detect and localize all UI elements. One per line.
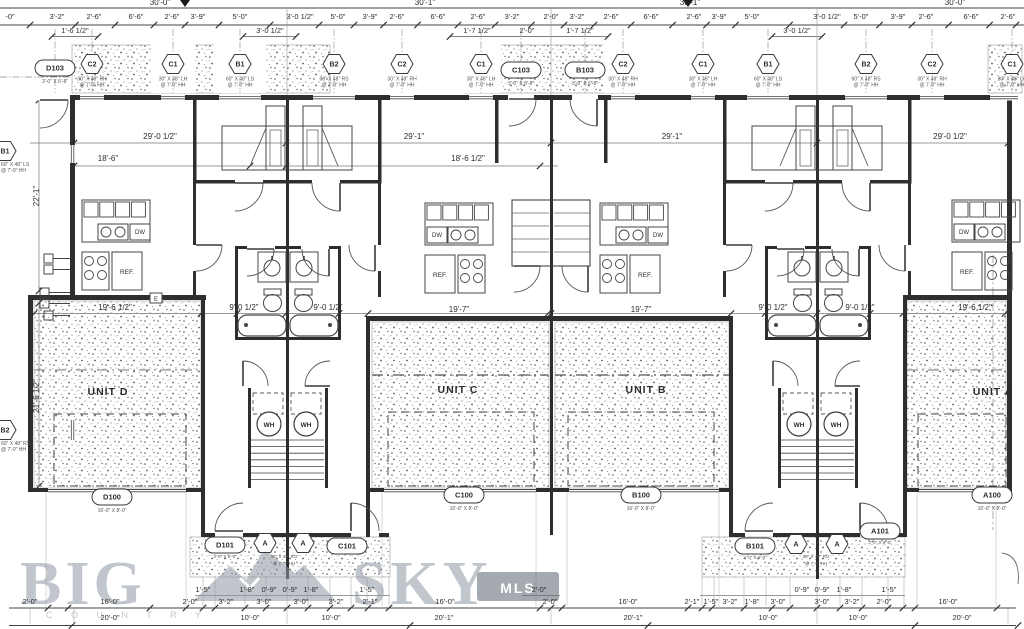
dim-text: 10'-0": [758, 613, 777, 622]
wall: [773, 533, 860, 537]
burner: [474, 274, 483, 283]
window-tag-label: C1: [1008, 62, 1017, 69]
dim-text: 5'-0": [331, 12, 346, 21]
door-swing-arc: [509, 99, 536, 126]
window-spec-text: @ 7'-0" HH: [610, 83, 635, 89]
window-opening: [390, 95, 414, 101]
burner: [988, 271, 997, 280]
dim-text: 3'-9": [891, 12, 906, 21]
cabinet: [602, 205, 616, 220]
door-tag-label: B103: [576, 66, 594, 75]
furniture-inner: [837, 130, 848, 166]
dim-text: 3'-0": [257, 597, 272, 606]
door-swing-arc: [562, 266, 588, 292]
dim-text: 2'-0": [23, 597, 38, 606]
sink-bowl: [992, 227, 1002, 237]
cabinet: [618, 205, 632, 220]
dim-text: 10'-0": [848, 613, 867, 622]
interior-dim-text: 18'-6 1/2": [451, 154, 485, 163]
interior-dim-text: 29'-1": [662, 132, 683, 141]
wall: [903, 295, 1012, 300]
dim-text: 0'-9": [283, 585, 298, 594]
wall: [366, 316, 370, 492]
appliance-dashed: [291, 393, 321, 414]
furniture-tall: [833, 106, 852, 170]
door-swing-arc: [726, 245, 752, 271]
dim-text: 1'-5": [196, 585, 211, 594]
interior-dim-text: 29'-0 1/2": [933, 132, 967, 141]
wall: [870, 180, 912, 184]
window-opening: [219, 95, 261, 101]
burner: [85, 271, 94, 280]
wall: [340, 180, 382, 184]
wall: [805, 246, 831, 249]
door-swing-arc: [247, 249, 274, 276]
door-tag-label: D100: [103, 493, 121, 502]
dishwasher-label: DW: [135, 230, 145, 236]
unit-label: UNIT C: [438, 384, 479, 396]
door-tag-label: C101: [338, 542, 356, 551]
window-opening: [313, 95, 355, 101]
dim-text: 3'-2": [723, 597, 738, 606]
wall: [903, 492, 907, 537]
wall: [765, 337, 871, 340]
dim-text: 3'-0 1/2": [286, 12, 314, 21]
overall-dim-text: 30'-0": [945, 0, 966, 7]
cabinet: [459, 205, 473, 220]
window-spec-text: 3'-0" X 6'-8": [42, 79, 68, 85]
tub-drain: [774, 323, 778, 327]
dim-text: 3'-0 1/2": [783, 26, 811, 35]
wall: [193, 271, 196, 297]
kitchen-sink: [448, 227, 478, 243]
wall: [551, 488, 569, 492]
wall: [729, 533, 745, 537]
tub-drain: [328, 323, 332, 327]
line: [780, 128, 796, 166]
dim-text: 20'-1": [434, 613, 453, 622]
overall-dim-text: 30'-0": [150, 0, 171, 7]
dim-text: 2'-6": [471, 12, 486, 21]
window-tag-label: B2: [330, 62, 339, 69]
refrigerator-label: REF.: [638, 272, 652, 279]
door-swing-arc: [765, 183, 793, 211]
window-spec-text: @ 7'-0" HH: [1, 168, 26, 174]
furniture-inner: [800, 130, 811, 166]
sink-bowl: [115, 227, 125, 237]
window-tag-label: A: [262, 541, 267, 548]
toilet-bowl: [295, 295, 313, 312]
cabinet: [474, 205, 488, 220]
window-tag-label: C2: [619, 62, 628, 69]
wall: [719, 488, 733, 492]
kitchen-sink: [616, 227, 646, 243]
dim-text: 2'-1": [685, 597, 700, 606]
burner: [461, 274, 470, 283]
door-swing-arc: [832, 249, 859, 276]
watermark-big: BIG: [20, 550, 146, 618]
door-swing-arc: [40, 100, 68, 128]
window-tag-label: A: [300, 541, 305, 548]
window-opening: [161, 95, 185, 101]
window-spec-text: 3'-0" X 6'-8": [572, 81, 598, 87]
cabinet: [986, 202, 1000, 217]
wall: [378, 95, 382, 183]
window-spec-text: @ 7'-0" HH: [160, 83, 185, 89]
wall: [723, 95, 727, 183]
window-opening: [990, 95, 1018, 101]
door-tag-label: A100: [983, 491, 1001, 500]
dim-text: 5'-0": [233, 12, 248, 21]
kitchen-sink: [98, 224, 128, 240]
window-spec-text: @ 7'-0" HH: [999, 83, 1024, 89]
window-tag-label: A: [834, 542, 839, 549]
dim-text: 10'-0": [321, 613, 340, 622]
burner: [461, 260, 470, 269]
garage-door-size-text: 16'-0" X 8'-0": [978, 506, 1007, 512]
floorplan-drawing: WHWHWHWHDWREF.DWREF.DWREF.DWREF.E BIG SK…: [0, 0, 1024, 629]
door-swing-arc: [215, 503, 243, 531]
door-swing-arc: [835, 361, 860, 386]
door-swing-arc: [777, 249, 804, 276]
door-swing-arc: [745, 503, 773, 531]
dim-text: 2'-0": [543, 597, 558, 606]
cabinet: [131, 202, 145, 217]
utility-meter: [44, 265, 53, 274]
dim-text: 1'-8": [304, 585, 319, 594]
garage-door-size-text: 16'-0" X 8'-0": [450, 506, 479, 512]
wall: [729, 492, 733, 537]
door-opening: [572, 95, 598, 101]
floorplan-sheet: WHWHWHWHDWREF.DWREF.DWREF.DWREF.E BIG SK…: [0, 0, 1024, 629]
dishwasher-label: DW: [959, 230, 969, 236]
wall: [28, 295, 206, 300]
dim-text: 3'-2": [570, 12, 585, 21]
cabinet: [100, 202, 114, 217]
dim-text: 16'-0": [618, 597, 637, 606]
interior-dim-text: 19'-7": [449, 305, 470, 314]
dim-text: 1'-7 1/2": [463, 26, 491, 35]
cabinet: [443, 205, 457, 220]
interior-dim-text: 9'-0 1/2": [313, 303, 342, 312]
window-tag-label: C1: [699, 62, 708, 69]
entry-door-size-text: 3'-0" X 8'-0": [868, 540, 892, 545]
wall: [903, 295, 907, 492]
burner: [616, 274, 625, 283]
window-spec-text: @ 7'-0" HH: [1, 447, 26, 453]
dim-text: 2'-0": [532, 585, 547, 594]
window-spec-text: 36" X 42" RO: [803, 554, 830, 559]
dim-text: 6'-6": [129, 12, 144, 21]
toilet-bowl: [264, 295, 282, 312]
dim-text: 0'-9": [795, 585, 810, 594]
dim-text: 6'-6": [431, 12, 446, 21]
burner: [98, 271, 107, 280]
wall: [908, 271, 911, 297]
burner: [616, 260, 625, 269]
dim-text: 3'-2": [50, 12, 65, 21]
window-tag-label: B1: [1, 149, 10, 156]
window-spec-text: @ 7'-0" HH: [79, 83, 104, 89]
door-swing-arc: [312, 183, 340, 211]
burner: [474, 260, 483, 269]
window-spec-text: @ 7'-0" HH: [690, 83, 715, 89]
sink-bowl: [633, 230, 643, 240]
wall: [908, 95, 912, 183]
refrigerator-label: REF.: [960, 269, 974, 276]
window-opening: [611, 95, 635, 101]
stipple-area: [72, 45, 330, 93]
door-swing-arc: [842, 183, 870, 211]
wall: [549, 316, 733, 321]
tub-drain: [244, 323, 248, 327]
furniture-inner: [307, 130, 318, 166]
cabinet: [970, 202, 984, 217]
mls-badge-label: MLS: [500, 580, 536, 596]
water-heater-label: WH: [301, 422, 312, 429]
door-swing-arc: [351, 503, 379, 531]
cabinet: [634, 205, 648, 220]
overall-dim-text: 30'-1": [415, 0, 436, 7]
dim-text: 2'-0": [877, 597, 892, 606]
sink-bowl: [465, 230, 475, 240]
sink-bowl: [978, 227, 988, 237]
window-spec-text: @ 7'-0" HH: [321, 83, 346, 89]
dim-text: 3'-2": [505, 12, 520, 21]
dim-text: 2'-0": [520, 26, 535, 35]
dim-text: 2'-6": [1001, 12, 1016, 21]
furniture-tall: [796, 106, 815, 170]
dim-text: 10'-0": [240, 613, 259, 622]
door-swing-arc: [514, 266, 540, 292]
dim-text: 20'-1": [623, 613, 642, 622]
vertical-dim-text: 21'-6 1/2": [32, 379, 41, 413]
burner: [988, 257, 997, 266]
dim-text: 1'-5": [360, 585, 375, 594]
wall: [201, 492, 205, 537]
window-opening: [70, 420, 76, 440]
dim-text: 16'-0": [435, 597, 454, 606]
interior-dim-text: 29'-1": [404, 132, 425, 141]
door-tag-label: D103: [46, 64, 64, 73]
wall: [903, 488, 919, 492]
window-tag-label: B2: [862, 62, 871, 69]
door-swing-arc: [879, 245, 905, 271]
wall: [378, 183, 381, 245]
wall: [28, 488, 48, 492]
interior-dim-text: 9'-0 1/2": [758, 303, 787, 312]
window-spec-text: @ 7'-0" HH: [805, 561, 828, 566]
door-tag-label: C100: [455, 491, 473, 500]
wall: [325, 388, 328, 488]
wall: [550, 95, 553, 535]
dim-text: 2'-6": [87, 12, 102, 21]
unit-label: UNIT A: [973, 386, 1014, 398]
dim-text: 20'-0": [100, 613, 119, 622]
toilet-bowl: [794, 295, 812, 312]
stipple-area: [555, 322, 729, 488]
water-heater-label: WH: [794, 422, 805, 429]
window-tag-label: B2: [1, 428, 10, 435]
interior-dim-text: 29'-0 1/2": [143, 132, 177, 141]
dim-text: 1'-8": [240, 585, 255, 594]
garage-door-size-text: 16'-0" X 8'-0": [98, 508, 127, 514]
dim-text: 3'-9": [363, 12, 378, 21]
line: [322, 128, 338, 166]
dim-text: 1'-8": [837, 585, 852, 594]
interior-dim-text: 18'-6": [98, 154, 119, 163]
dim-text: 5'-0": [854, 12, 869, 21]
door-swing-arc: [570, 99, 597, 126]
burner: [98, 257, 107, 266]
furniture-tall: [303, 106, 322, 170]
dim-text: 16'-0": [100, 597, 119, 606]
interior-dim-text: 19'-7": [631, 305, 652, 314]
dim-text: 3'-9": [712, 12, 727, 21]
window-tag-label: C2: [398, 62, 407, 69]
interior-dim-text: 9'-0 1/2": [845, 303, 874, 312]
window-opening: [80, 95, 104, 101]
wall: [729, 316, 733, 492]
door-tag-label: D101: [216, 541, 234, 550]
sink-bowl: [619, 230, 629, 240]
window-opening: [747, 95, 789, 101]
wall: [201, 295, 205, 492]
window-spec-text: @ 7'-0" HH: [919, 83, 944, 89]
appliance-dashed: [821, 393, 851, 414]
leader-curve: [1002, 553, 1018, 584]
window-opening: [920, 95, 944, 101]
window-tag-label: C2: [88, 62, 97, 69]
dim-text: 3'-2": [845, 597, 860, 606]
window-spec-text: @ 7'-0" HH: [273, 561, 296, 566]
north-arrow: [180, 0, 190, 7]
window-spec-text: @ 7'-0" HH: [227, 83, 252, 89]
window-tag-label: C2: [928, 62, 937, 69]
wall: [70, 95, 75, 299]
door-swing-arc: [235, 183, 263, 211]
wall: [235, 337, 341, 340]
cabinet: [954, 202, 968, 217]
burner: [603, 260, 612, 269]
door-swing-arc: [305, 361, 330, 386]
wall: [201, 533, 215, 537]
wall: [378, 271, 381, 297]
dim-text: 2'-1": [363, 597, 378, 606]
vertical-dim-text: 22'-1": [32, 186, 41, 207]
wall: [366, 316, 553, 321]
dim-text: 3'-0 1/2": [256, 26, 284, 35]
interior-dim-text: 19'-6 1/2": [958, 303, 992, 312]
dim-text: 2'-6": [919, 12, 934, 21]
door-tag-label: B100: [632, 491, 650, 500]
window-tag-label: C1: [169, 62, 178, 69]
dim-text: 3'-9": [191, 12, 206, 21]
water-heater-label: WH: [264, 422, 275, 429]
dim-text: -0": [5, 12, 15, 21]
wall: [723, 183, 726, 245]
door-swing-arc: [349, 245, 375, 271]
unit-label: UNIT B: [626, 384, 667, 396]
dim-text: 20'-0": [952, 613, 971, 622]
wall: [275, 246, 301, 249]
dim-text: 1'-8": [745, 597, 760, 606]
furniture-inner: [270, 130, 281, 166]
dim-text: 2'-0": [544, 12, 559, 21]
wall: [604, 95, 608, 163]
cabinet: [427, 205, 441, 220]
wall: [723, 271, 726, 297]
dim-text: 1'-5": [882, 585, 897, 594]
dishwasher-label: DW: [653, 233, 663, 239]
dim-text: 2'-6": [604, 12, 619, 21]
wall: [366, 488, 384, 492]
window-tag-label: B1: [236, 62, 245, 69]
window-opening: [469, 95, 493, 101]
wall: [366, 492, 370, 537]
cabinet: [649, 205, 663, 220]
window-spec-text: @ 7'-0" HH: [853, 83, 878, 89]
window-tag-label: B1: [764, 62, 773, 69]
electrical-panel-label: E: [154, 297, 158, 303]
wall: [1007, 95, 1012, 492]
window-spec-text: @ 7'-0" HH: [468, 83, 493, 89]
window-opening: [845, 95, 887, 101]
door-swing-arc: [773, 361, 798, 386]
dim-text: 1'-6 1/2": [61, 26, 89, 35]
interior-dim-text: 9'-0 1/2": [229, 303, 258, 312]
wall: [908, 183, 911, 245]
sink-bowl: [101, 227, 111, 237]
cabinet: [116, 202, 130, 217]
door-tag-label: C103: [512, 66, 530, 75]
wall: [855, 388, 858, 488]
burner: [603, 274, 612, 283]
dim-text: 0'-9": [262, 585, 277, 594]
toilet-bowl: [825, 295, 843, 312]
dim-text: 5'-0": [745, 12, 760, 21]
utility-meter: [44, 254, 53, 263]
wall: [186, 488, 205, 492]
window-opening: [70, 145, 76, 163]
refrigerator-label: REF.: [120, 269, 134, 276]
dim-text: 6'-6": [964, 12, 979, 21]
interior-dim-text: 19'-6 1/2": [98, 303, 132, 312]
dim-text: 3'-2": [219, 597, 234, 606]
dim-text: 16'-0": [938, 597, 957, 606]
line: [852, 128, 868, 166]
wall: [193, 95, 197, 183]
door-tag-label: A101: [871, 527, 889, 536]
wall: [248, 388, 251, 488]
wall: [193, 183, 196, 245]
dim-text: 3'-0": [294, 597, 309, 606]
stipple-area: [372, 322, 549, 488]
cabinet: [84, 202, 98, 217]
water-heater-label: WH: [831, 422, 842, 429]
furniture-tall: [266, 106, 285, 170]
dim-text: 3'-2": [329, 597, 344, 606]
dim-text: 6'-6": [644, 12, 659, 21]
dim-text: 1'-7 1/2": [566, 26, 594, 35]
dim-text: 1'-5": [704, 597, 719, 606]
refrigerator-label: REF.: [433, 272, 447, 279]
wall: [193, 180, 235, 184]
window-spec-text: @ 7'-0" HH: [389, 83, 414, 89]
entry-door-size-text: 3'-0" X 8'-0": [213, 554, 237, 559]
window-spec-text: 36" X 42" RO: [271, 554, 298, 559]
door-swing-arc: [196, 245, 222, 271]
